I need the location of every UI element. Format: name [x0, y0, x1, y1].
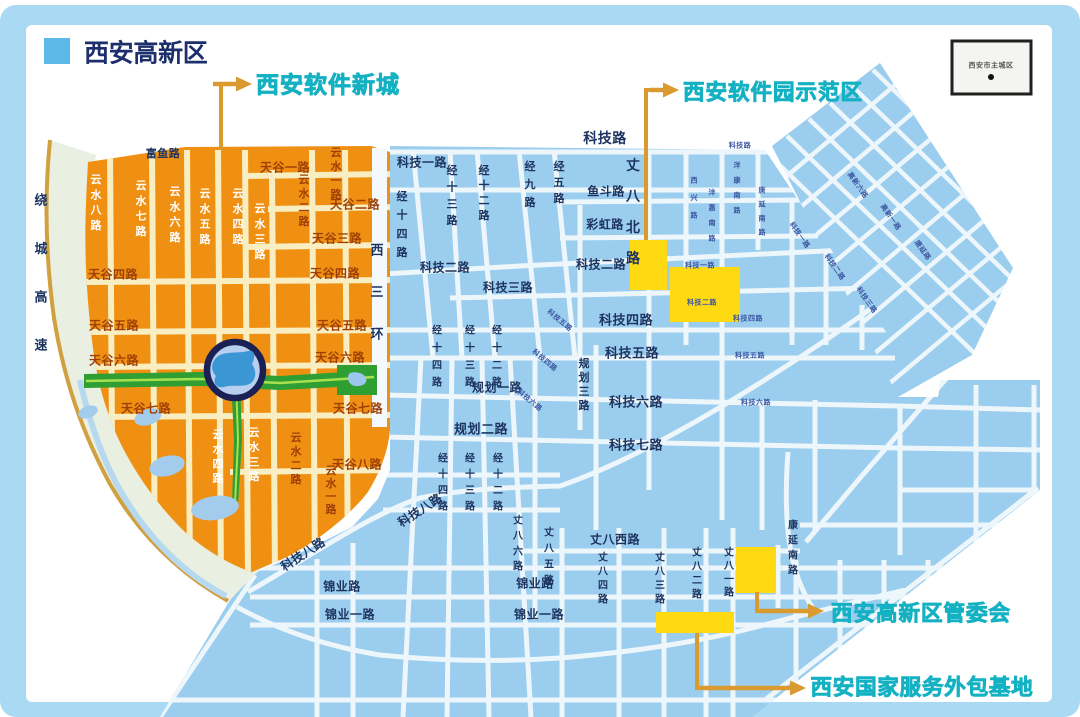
svg-text:八: 八 [543, 543, 555, 555]
svg-text:水: 水 [200, 201, 212, 215]
svg-text:鱼斗路: 鱼斗路 [587, 183, 625, 198]
svg-text:规划二路: 规划二路 [454, 422, 509, 437]
svg-text:南: 南 [709, 218, 716, 227]
svg-text:八: 八 [90, 204, 103, 217]
svg-text:十: 十 [447, 180, 458, 194]
svg-text:三: 三 [249, 455, 260, 468]
svg-text:丈: 丈 [655, 551, 665, 564]
svg-text:沣: 沣 [709, 188, 716, 197]
svg-text:一: 一 [326, 491, 337, 503]
svg-text:路: 路 [691, 211, 699, 220]
svg-text:经: 经 [554, 159, 565, 173]
svg-text:二: 二 [479, 195, 490, 207]
svg-text:规: 规 [579, 356, 590, 370]
svg-text:划: 划 [579, 370, 590, 384]
svg-text:八: 八 [654, 566, 666, 578]
svg-text:二: 二 [492, 359, 502, 371]
svg-text:西安高新区管委会: 西安高新区管委会 [831, 601, 1011, 626]
svg-text:唐: 唐 [759, 186, 766, 195]
svg-text:路: 路 [397, 245, 409, 259]
svg-text:丈: 丈 [513, 514, 523, 527]
svg-text:西安软件园示范区: 西安软件园示范区 [683, 80, 863, 105]
svg-text:经: 经 [397, 189, 408, 203]
svg-text:科技五路: 科技五路 [735, 351, 765, 360]
svg-text:二: 二 [692, 575, 702, 587]
svg-text:路: 路 [438, 500, 449, 513]
svg-text:天谷八路: 天谷八路 [332, 456, 383, 471]
svg-text:路: 路 [598, 593, 609, 606]
svg-text:科技二路: 科技二路 [687, 298, 717, 307]
svg-text:十: 十 [465, 468, 475, 481]
svg-text:云: 云 [213, 428, 224, 441]
svg-text:五: 五 [544, 559, 554, 571]
svg-text:康: 康 [788, 519, 799, 532]
svg-text:天谷七路: 天谷七路 [121, 400, 172, 415]
svg-text:路: 路 [724, 586, 735, 599]
svg-text:丈: 丈 [724, 546, 734, 559]
svg-text:天谷四路: 天谷四路 [310, 265, 361, 280]
svg-text:南: 南 [759, 214, 766, 223]
svg-text:兴: 兴 [691, 193, 698, 202]
svg-text:经: 经 [525, 159, 536, 173]
svg-text:路: 路 [233, 232, 245, 246]
svg-text:科技二路: 科技二路 [420, 259, 471, 274]
svg-text:路: 路 [655, 593, 666, 606]
svg-text:水: 水 [249, 440, 261, 454]
svg-text:绕: 绕 [34, 193, 47, 208]
svg-text:路: 路 [513, 560, 524, 573]
svg-text:路: 路 [479, 208, 491, 222]
svg-text:路: 路 [709, 234, 717, 243]
svg-text:三: 三 [465, 485, 475, 497]
svg-text:路: 路 [170, 230, 182, 244]
svg-text:云: 云 [91, 173, 102, 186]
svg-text:经: 经 [432, 324, 442, 337]
svg-text:六: 六 [513, 544, 523, 557]
svg-text:天谷二路: 天谷二路 [330, 196, 381, 211]
svg-text:云: 云 [170, 185, 181, 198]
svg-text:丈: 丈 [692, 546, 702, 559]
svg-text:云: 云 [200, 187, 211, 200]
svg-text:路: 路 [200, 232, 212, 246]
svg-text:经: 经 [492, 324, 502, 337]
svg-text:八: 八 [512, 530, 524, 542]
svg-text:西安高新区: 西安高新区 [84, 39, 208, 68]
svg-text:南: 南 [788, 549, 798, 562]
svg-text:环: 环 [370, 327, 383, 342]
svg-text:三: 三 [370, 285, 383, 300]
svg-text:水: 水 [331, 159, 343, 173]
svg-text:南: 南 [734, 191, 741, 200]
svg-text:十: 十 [438, 468, 448, 481]
svg-text:科技六路: 科技六路 [741, 398, 771, 407]
svg-text:八: 八 [723, 560, 735, 572]
svg-text:天谷六路: 天谷六路 [89, 352, 140, 367]
svg-text:天谷一路: 天谷一路 [260, 159, 311, 174]
svg-text:水: 水 [255, 216, 267, 230]
svg-text:二: 二 [299, 202, 310, 214]
svg-text:丈八西路: 丈八西路 [590, 531, 641, 546]
svg-text:富鱼路: 富鱼路 [146, 146, 181, 160]
svg-text:天谷五路: 天谷五路 [317, 317, 368, 332]
svg-text:路: 路 [136, 224, 148, 238]
svg-text:经: 经 [493, 452, 503, 465]
svg-text:四: 四 [598, 580, 608, 592]
svg-text:云: 云 [233, 187, 244, 200]
svg-text:路: 路 [326, 502, 338, 516]
svg-text:路: 路 [493, 500, 504, 513]
svg-text:北: 北 [626, 219, 640, 235]
svg-text:十: 十 [493, 468, 503, 481]
svg-text:延: 延 [758, 200, 767, 209]
svg-text:六: 六 [170, 215, 181, 229]
svg-text:路: 路 [626, 250, 641, 266]
svg-text:科技一路: 科技一路 [685, 261, 715, 270]
svg-text:延: 延 [787, 534, 799, 547]
svg-text:云: 云 [299, 173, 310, 186]
svg-text:五: 五 [554, 176, 565, 189]
svg-text:高: 高 [34, 289, 47, 304]
svg-text:西安市主城区: 西安市主城区 [969, 61, 1014, 70]
svg-text:科技六路: 科技六路 [609, 395, 664, 410]
svg-text:五: 五 [200, 218, 211, 231]
svg-text:科技路: 科技路 [583, 130, 627, 146]
svg-text:科技二路: 科技二路 [576, 256, 627, 271]
svg-text:西: 西 [691, 177, 698, 185]
svg-text:水: 水 [91, 187, 103, 201]
svg-text:十: 十 [432, 341, 442, 354]
svg-text:二: 二 [493, 485, 503, 497]
svg-text:四: 四 [233, 218, 244, 231]
svg-text:科技七路: 科技七路 [609, 438, 664, 453]
svg-text:经: 经 [447, 163, 458, 177]
svg-text:科技三路: 科技三路 [483, 279, 534, 294]
svg-text:一: 一 [331, 175, 342, 187]
svg-text:路: 路 [554, 191, 566, 205]
svg-text:八: 八 [625, 188, 641, 204]
svg-text:三: 三 [465, 359, 475, 371]
svg-text:路: 路 [734, 206, 742, 215]
svg-text:三: 三 [655, 580, 665, 592]
svg-text:科技四路: 科技四路 [599, 313, 654, 328]
svg-text:水: 水 [213, 442, 225, 456]
svg-text:科技五路: 科技五路 [605, 346, 660, 361]
svg-text:西: 西 [370, 243, 383, 258]
svg-text:经: 经 [438, 452, 448, 465]
svg-text:天谷四路: 天谷四路 [88, 266, 139, 281]
svg-text:路: 路 [692, 588, 703, 601]
svg-text:水: 水 [299, 186, 311, 200]
svg-text:云: 云 [331, 146, 342, 159]
svg-text:路: 路 [492, 376, 503, 389]
svg-text:西安国家服务外包基地: 西安国家服务外包基地 [810, 675, 1033, 700]
svg-text:路: 路 [213, 471, 225, 485]
svg-text:三: 三 [255, 233, 266, 246]
svg-text:水: 水 [291, 444, 303, 458]
svg-text:天谷五路: 天谷五路 [89, 317, 140, 332]
svg-text:水: 水 [170, 199, 182, 213]
svg-text:云: 云 [249, 426, 260, 439]
svg-text:天谷三路: 天谷三路 [312, 230, 363, 245]
svg-text:路: 路 [91, 218, 103, 232]
svg-text:二: 二 [291, 460, 302, 472]
svg-text:路: 路 [579, 398, 591, 412]
svg-text:路: 路 [788, 564, 799, 577]
svg-text:水: 水 [326, 476, 338, 490]
svg-text:路: 路 [465, 376, 476, 389]
svg-text:七: 七 [136, 209, 147, 223]
svg-text:科技四路: 科技四路 [733, 314, 763, 323]
svg-text:一: 一 [724, 574, 734, 585]
svg-text:彩虹路: 彩虹路 [585, 216, 624, 231]
svg-text:锦业一路: 锦业一路 [325, 606, 376, 621]
svg-text:云: 云 [291, 431, 302, 444]
svg-text:丈: 丈 [544, 526, 554, 539]
svg-text:路: 路 [255, 247, 267, 261]
svg-text:天谷七路: 天谷七路 [333, 400, 384, 415]
svg-text:三: 三 [579, 385, 590, 398]
svg-text:四: 四 [432, 359, 442, 371]
svg-text:四: 四 [438, 485, 448, 497]
svg-text:城: 城 [34, 241, 47, 256]
svg-text:科技路: 科技路 [729, 141, 752, 150]
svg-text:十: 十 [465, 341, 475, 354]
svg-text:四: 四 [213, 457, 224, 470]
svg-text:丈: 丈 [598, 551, 608, 564]
svg-text:云: 云 [255, 202, 266, 215]
svg-text:水: 水 [136, 193, 148, 207]
svg-text:十: 十 [397, 208, 408, 222]
svg-text:八: 八 [597, 566, 609, 578]
svg-text:科技一路: 科技一路 [397, 154, 448, 169]
svg-text:经: 经 [465, 324, 475, 337]
svg-text:十: 十 [492, 341, 502, 354]
svg-text:惠: 惠 [709, 203, 716, 212]
svg-text:路: 路 [299, 214, 311, 228]
svg-text:路: 路 [291, 472, 303, 486]
svg-text:丈: 丈 [626, 157, 640, 173]
svg-text:水: 水 [233, 201, 245, 215]
svg-text:九: 九 [524, 177, 536, 191]
svg-text:路: 路 [249, 469, 261, 483]
svg-text:速: 速 [34, 338, 47, 353]
svg-text:三: 三 [447, 197, 458, 210]
svg-text:洋: 洋 [734, 161, 741, 170]
svg-text:路: 路 [465, 500, 476, 513]
svg-text:路: 路 [544, 574, 555, 587]
svg-text:经: 经 [465, 452, 475, 465]
svg-text:锦业路: 锦业路 [323, 578, 361, 593]
svg-text:八: 八 [691, 561, 703, 573]
svg-text:路: 路 [447, 213, 459, 227]
svg-text:经: 经 [479, 163, 490, 177]
svg-text:十: 十 [479, 178, 490, 192]
svg-text:西安软件新城: 西安软件新城 [256, 71, 400, 97]
svg-text:天谷六路: 天谷六路 [315, 349, 366, 364]
svg-text:路: 路 [525, 195, 537, 209]
svg-text:锦业一路: 锦业一路 [514, 606, 565, 621]
svg-text:云: 云 [136, 179, 147, 192]
svg-text:四: 四 [397, 227, 408, 240]
svg-text:路: 路 [759, 228, 767, 237]
svg-text:路: 路 [432, 376, 443, 389]
svg-text:康: 康 [734, 176, 742, 185]
